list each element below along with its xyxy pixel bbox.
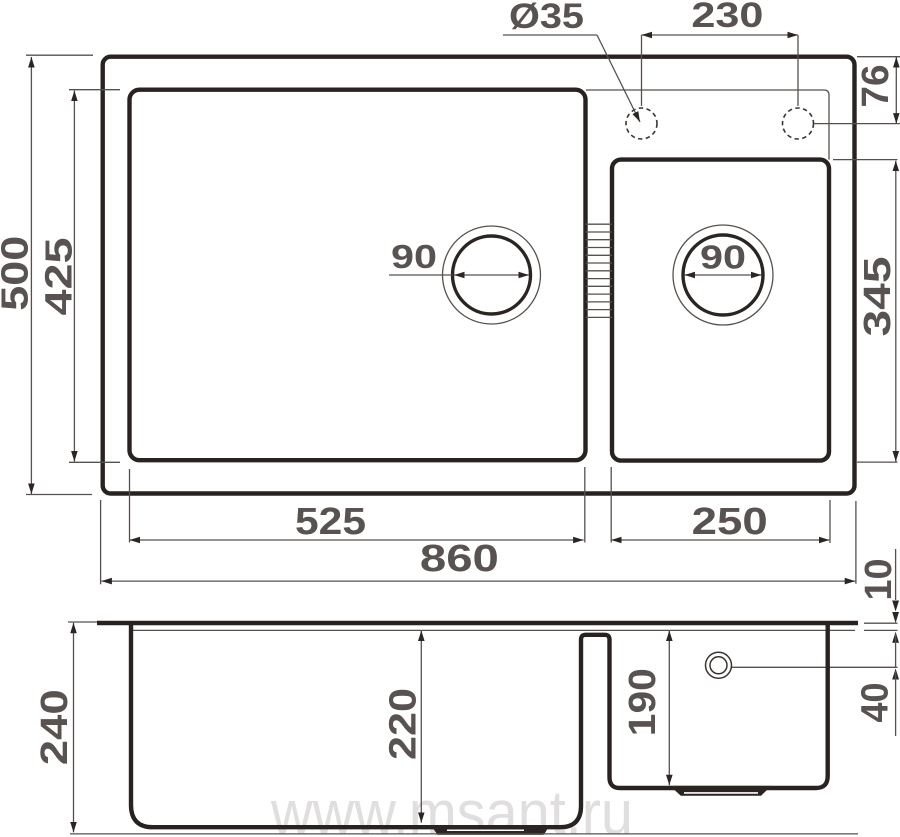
svg-text:345: 345: [857, 257, 899, 337]
svg-text:230: 230: [691, 0, 763, 35]
svg-text:40: 40: [855, 683, 897, 723]
svg-text:90: 90: [700, 239, 746, 276]
svg-text:190: 190: [622, 668, 664, 736]
svg-text:10: 10: [858, 559, 900, 601]
svg-text:90: 90: [391, 238, 437, 275]
svg-text:76: 76: [855, 65, 897, 108]
svg-text:240: 240: [34, 689, 76, 765]
svg-text:525: 525: [295, 501, 366, 543]
svg-text:250: 250: [692, 501, 768, 543]
svg-text:Ø35: Ø35: [509, 0, 584, 36]
svg-text:860: 860: [420, 538, 499, 580]
svg-text:220: 220: [383, 688, 425, 760]
